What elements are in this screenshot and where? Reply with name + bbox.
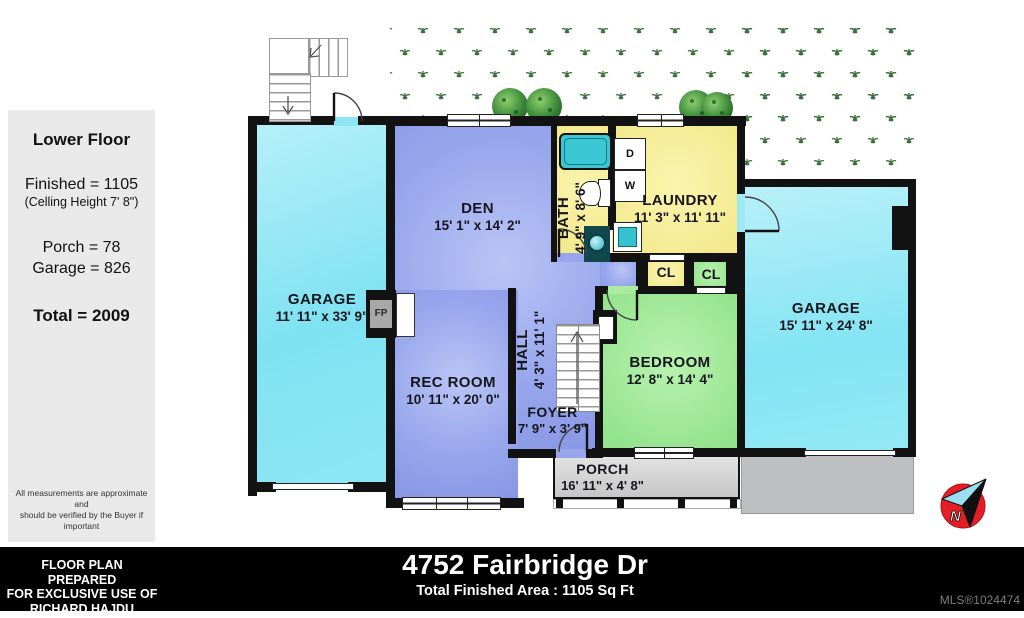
room-dims: 11' 3" x 11' 11" (616, 210, 744, 226)
wall-segment (386, 116, 746, 126)
room-name: PORCH (545, 461, 660, 478)
address-title: 4752 Fairbridge Dr (402, 549, 648, 581)
room-dims: 16' 11" x 4' 8" (545, 478, 660, 494)
compass-north-label: N (950, 508, 962, 525)
room-dims: 11' 11" x 33' 9" (256, 309, 388, 325)
label-laundry: LAUNDRY 11' 3" x 11' 11" (616, 192, 744, 227)
wall-segment (737, 232, 745, 457)
wall-segment (592, 448, 806, 457)
total-area: Total = 2009 (8, 306, 155, 326)
closet-door-line (696, 287, 726, 294)
laundry-sink-basin (618, 227, 637, 247)
room-dims: 4' 9" x 8' 6" (573, 138, 589, 298)
room-name: FOYER (505, 404, 600, 421)
finished-area: Finished = 1105 (8, 176, 155, 194)
prepared-for-block: FLOOR PLAN PREPARED FOR EXCLUSIVE USE OF… (6, 558, 158, 616)
total-finished-area: Total Finished Area : 1105 Sq Ft (416, 583, 634, 599)
dryer-label: D (626, 148, 634, 160)
prepared-line: RICHARD HAJDU (6, 602, 158, 617)
porch-area: Porch = 78 (8, 239, 155, 257)
wall-segment (508, 449, 556, 458)
garage-door-line (804, 450, 896, 456)
label-garage-left: GARAGE 11' 11" x 33' 9" (256, 291, 388, 326)
room-name: GARAGE (256, 291, 388, 309)
closet-door-line (649, 254, 685, 261)
compass-icon: N (933, 468, 997, 534)
garage-door-line (272, 483, 354, 490)
exterior-stair-flight-east (308, 38, 348, 77)
garage-area: Garage = 826 (8, 260, 155, 278)
room-name: REC ROOM (392, 374, 514, 392)
room-name: DEN (395, 200, 560, 218)
room-dims: 15' 11" x 24' 8" (746, 318, 906, 334)
wall-segment (348, 482, 394, 492)
floor-title: Lower Floor (8, 130, 155, 150)
window (637, 114, 662, 127)
niche-window (598, 316, 614, 340)
hearth (396, 293, 415, 337)
disclaimer-line: should be verified by the Buyer if impor… (8, 510, 155, 532)
title-bar: FLOOR PLAN PREPARED FOR EXCLUSIVE USE OF… (0, 547, 1024, 611)
interior-staircase (556, 324, 600, 412)
porch-post (678, 498, 685, 508)
porch-post (556, 498, 563, 508)
washer-label: W (625, 180, 635, 192)
window (436, 497, 468, 510)
room-dims: 7' 9" x 3' 9" (505, 421, 600, 437)
label-rec-room: REC ROOM 10' 11" x 20' 0" (392, 374, 514, 409)
window (467, 497, 501, 510)
room-dims: 10' 11" x 20' 0" (392, 392, 514, 408)
window (664, 447, 694, 459)
floorplan-page: D W FP (0, 0, 1024, 618)
wall-segment (737, 179, 916, 187)
room-name: GARAGE (746, 300, 906, 318)
disclaimer: All measurements are approximate and sho… (8, 488, 155, 532)
room-dims: 15' 1" x 14' 2" (395, 218, 560, 234)
door-opening (334, 117, 358, 126)
room-dims: 12' 8" x 14' 4" (601, 372, 739, 388)
porch-post-band (553, 499, 741, 509)
label-den: DEN 15' 1" x 14' 2" (395, 200, 560, 235)
disclaimer-line: All measurements are approximate and (8, 488, 155, 510)
label-bedroom: BEDROOM 12' 8" x 14' 4" (601, 354, 739, 389)
door-opening (608, 286, 638, 294)
porch-post (730, 498, 737, 508)
wall-chimney-bump (892, 206, 916, 250)
label-foyer: FOYER 7' 9" x 3' 9" (505, 404, 600, 437)
ceiling-height: (Celling Height 7' 8") (8, 195, 155, 209)
prepared-line: FOR EXCLUSIVE USE OF (6, 587, 158, 602)
door-opening (556, 449, 586, 458)
label-garage-right: GARAGE 15' 11" x 24' 8" (746, 300, 906, 335)
porch-post (617, 498, 624, 508)
label-porch: PORCH 16' 11" x 4' 8" (545, 461, 660, 494)
label-closet-laundry: CL (646, 264, 686, 280)
driveway-apron (741, 455, 914, 514)
mls-number: MLS®1024474 (940, 593, 1020, 607)
exterior-stair-flight-south (269, 73, 311, 122)
exterior-stair-landing (269, 38, 312, 77)
grass-right (737, 28, 916, 185)
window (661, 114, 684, 127)
room-name: BEDROOM (601, 354, 739, 372)
dryer: D (614, 138, 646, 170)
window (479, 114, 511, 127)
window (447, 114, 480, 127)
summary-sidebar: Lower Floor Finished = 1105 (Celling Hei… (8, 110, 155, 542)
prepared-line: FLOOR PLAN PREPARED (6, 558, 158, 587)
room-name: LAUNDRY (616, 192, 744, 210)
window (402, 497, 437, 510)
staircase-center-rail (578, 325, 579, 411)
label-bath: BATH 4' 9" x 8' 6" (555, 138, 599, 298)
label-closet-bedroom: CL (692, 266, 730, 282)
window (634, 447, 665, 459)
